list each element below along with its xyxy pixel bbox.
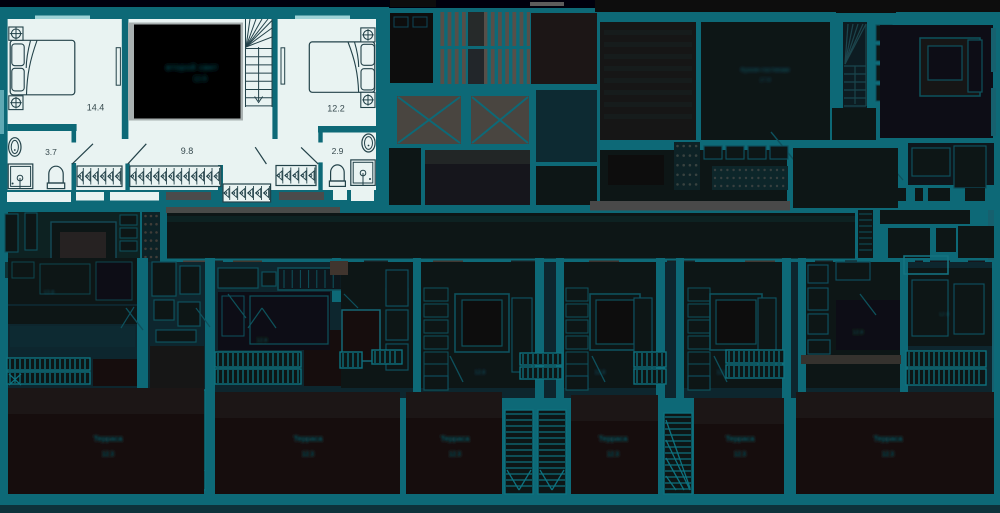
svg-text:12.8: 12.8 xyxy=(44,290,55,296)
svg-text:Терраса: Терраса xyxy=(94,434,124,443)
svg-text:Терраса: Терраса xyxy=(441,434,471,443)
svg-text:Терраса: Терраса xyxy=(599,434,629,443)
svg-text:12.3: 12.3 xyxy=(302,452,314,458)
svg-text:Терраса: Терраса xyxy=(726,434,756,443)
svg-text:12.3: 12.3 xyxy=(449,452,461,458)
svg-text:9.8: 9.8 xyxy=(181,146,194,156)
svg-text:17.9: 17.9 xyxy=(759,78,771,84)
svg-text:Терраса: Терраса xyxy=(874,434,904,443)
svg-text:3.7: 3.7 xyxy=(45,147,57,157)
svg-text:12.8: 12.8 xyxy=(257,338,268,344)
svg-text:12.8: 12.8 xyxy=(939,312,950,318)
svg-text:12.8: 12.8 xyxy=(475,370,486,376)
svg-text:12.3: 12.3 xyxy=(734,452,746,458)
svg-text:12.3: 12.3 xyxy=(607,452,619,458)
svg-text:2.9: 2.9 xyxy=(332,146,344,156)
svg-text:Терраса: Терраса xyxy=(294,434,324,443)
svg-text:14.4: 14.4 xyxy=(87,103,105,113)
svg-text:12.3: 12.3 xyxy=(102,452,114,458)
svg-text:второй свет: второй свет xyxy=(166,62,218,72)
svg-text:12.3: 12.3 xyxy=(882,452,894,458)
svg-text:12.6: 12.6 xyxy=(193,76,207,83)
svg-text:Кухня-гостиная: Кухня-гостиная xyxy=(740,67,790,74)
svg-text:12.8: 12.8 xyxy=(853,330,864,336)
svg-text:12.2: 12.2 xyxy=(327,104,345,114)
svg-text:12.8: 12.8 xyxy=(717,370,728,376)
svg-text:12.8: 12.8 xyxy=(595,370,606,376)
